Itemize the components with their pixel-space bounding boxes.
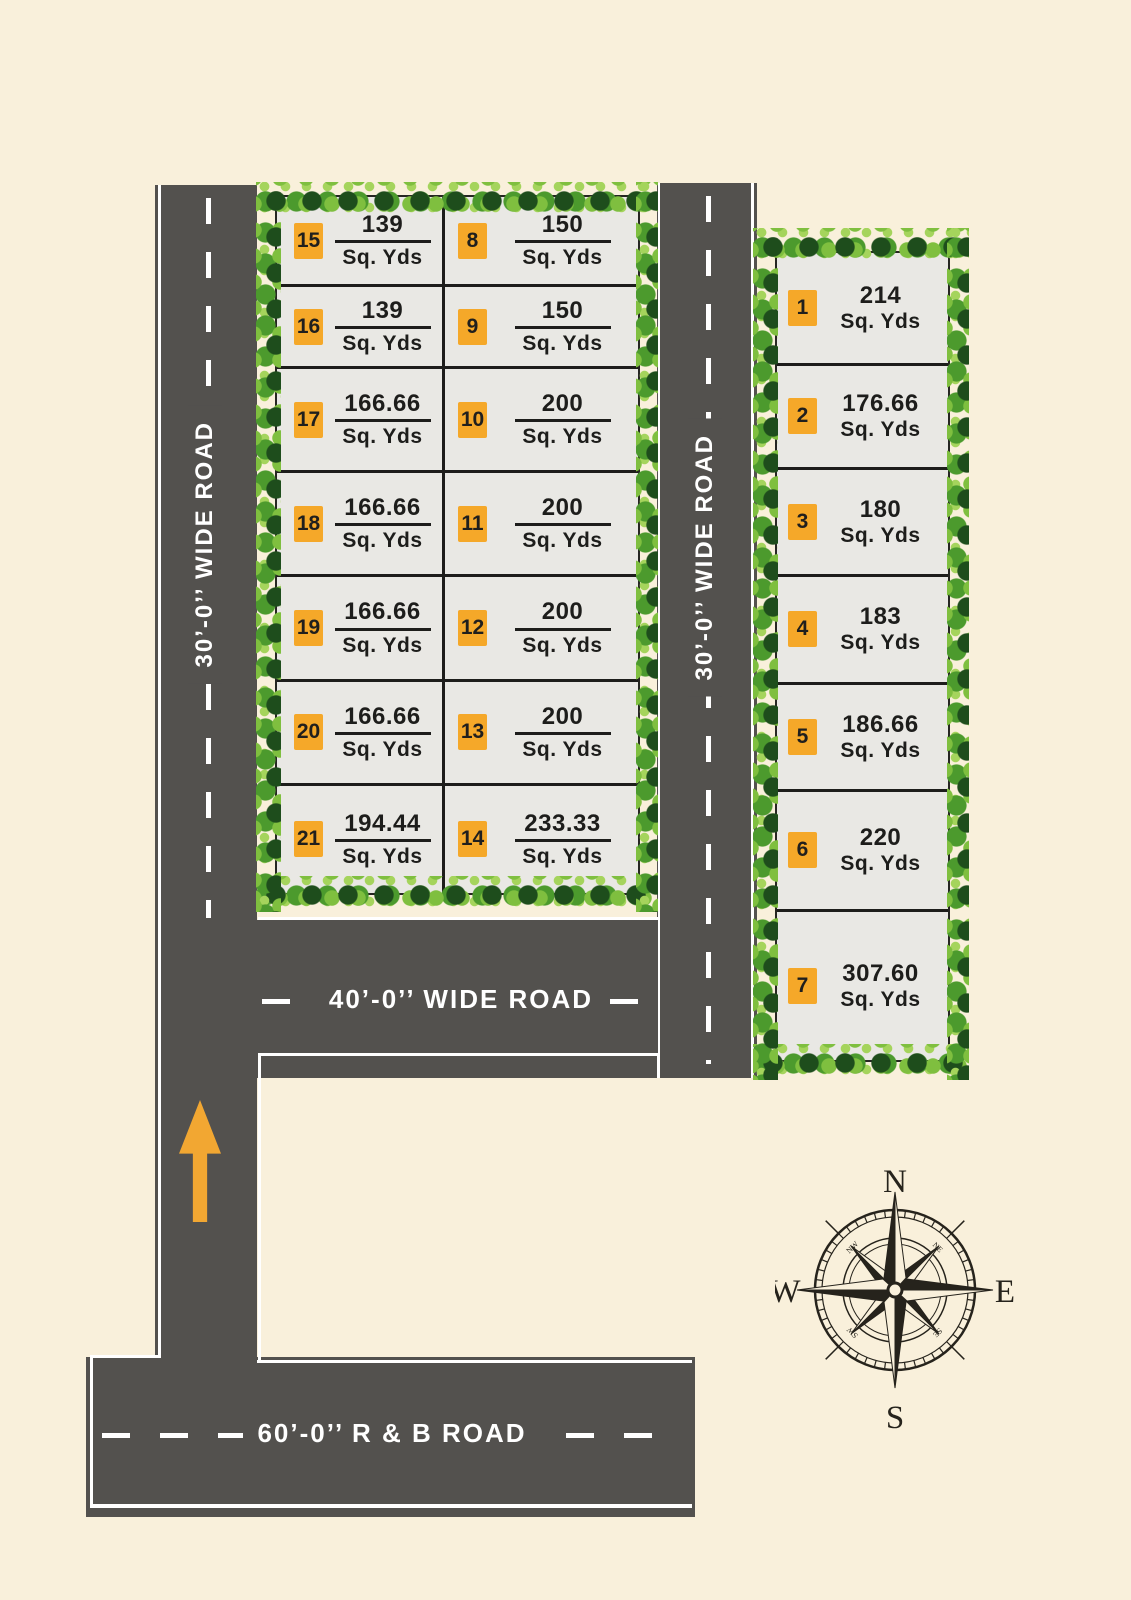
plot-area: 200 Sq. Yds — [487, 599, 638, 656]
plot-area: 200 Sq. Yds — [487, 391, 638, 448]
plot-number-badge: 14 — [458, 821, 487, 857]
middle-road-label: 30’-0’’ WIDE ROAD — [688, 418, 722, 696]
plot-area: 150 Sq. Yds — [487, 212, 638, 269]
plot-cell: 3 180 Sq. Yds — [777, 470, 948, 577]
plot-number-badge: 19 — [294, 610, 323, 646]
plot-area-value: 176.66 — [842, 391, 918, 416]
forty-road-label: 40’-0’’ WIDE ROAD — [315, 982, 607, 1017]
sixty-road-label-wrap: 60’-0’’ R & B ROAD — [102, 1416, 682, 1451]
plot-area-value: 166.66 — [344, 599, 420, 624]
plot-cell: 7 307.60 Sq. Yds — [777, 912, 948, 1060]
plot-number-badge: 8 — [458, 223, 487, 259]
parcel-outline-left — [258, 1053, 261, 1360]
compass-south-label: S — [886, 1400, 904, 1436]
plot-number-badge: 16 — [294, 309, 323, 345]
plot-area-value: 200 — [542, 704, 584, 729]
plot-cell: 4 183 Sq. Yds — [777, 577, 948, 684]
plot-cell: 19 166.66 Sq. Yds — [277, 577, 442, 681]
corner-parcel-line-h — [92, 1355, 161, 1358]
plot-area-value: 166.66 — [344, 391, 420, 416]
sixty-road-left-edge-line — [90, 1355, 93, 1507]
fraction-line — [335, 839, 431, 842]
parcel-outline-top — [258, 1053, 660, 1056]
plot-area-value: 166.66 — [344, 704, 420, 729]
forty-road-label-wrap: 40’-0’’ WIDE ROAD — [262, 982, 660, 1017]
sixty-road-label: 60’-0’’ R & B ROAD — [243, 1416, 540, 1451]
plot-area-unit: Sq. Yds — [342, 635, 422, 657]
plot-area: 176.66 Sq. Yds — [817, 391, 944, 441]
plot-area-unit: Sq. Yds — [342, 739, 422, 761]
plot-number-badge: 5 — [788, 719, 817, 755]
tree-border-icon — [256, 876, 658, 912]
fraction-line — [515, 240, 611, 243]
fraction-line — [515, 628, 611, 631]
left-road-edge-line — [158, 185, 161, 1355]
plot-area-unit: Sq. Yds — [522, 426, 602, 448]
plot-number-badge: 12 — [458, 610, 487, 646]
plot-area-value: 307.60 — [842, 961, 918, 986]
plot-area: 166.66 Sq. Yds — [323, 704, 442, 761]
fraction-line — [335, 732, 431, 735]
plot-area: 186.66 Sq. Yds — [817, 712, 944, 762]
site-plan: 30’-0’’ WIDE ROAD 30’-0’’ WIDE ROAD 40’-… — [0, 0, 1131, 1600]
plot-area: 194.44 Sq. Yds — [323, 811, 442, 868]
plot-area-unit: Sq. Yds — [840, 311, 920, 333]
fraction-line — [515, 732, 611, 735]
plot-cell: 1 214 Sq. Yds — [777, 253, 948, 366]
compass-north-label: N — [883, 1164, 907, 1200]
middle-road-left-edge-line — [658, 183, 660, 1078]
plot-number-badge: 20 — [294, 714, 323, 750]
plot-number-badge: 11 — [458, 506, 487, 542]
plot-area: 200 Sq. Yds — [487, 704, 638, 761]
plot-column-15-21: 15 139 Sq. Yds 16 139 Sq. Yds 17 166.66 … — [277, 197, 442, 893]
plot-number-badge: 15 — [294, 223, 323, 259]
plot-area-unit: Sq. Yds — [840, 853, 920, 875]
fraction-line — [335, 628, 431, 631]
plot-area-value: 166.66 — [344, 495, 420, 520]
plot-area-value: 220 — [860, 825, 902, 850]
plot-cell: 13 200 Sq. Yds — [445, 682, 638, 786]
plot-area-value: 139 — [362, 212, 404, 237]
plot-number-badge: 9 — [458, 309, 487, 345]
plot-number-badge: 2 — [788, 398, 817, 434]
compass-east-label: E — [995, 1274, 1015, 1310]
fraction-line — [515, 419, 611, 422]
plot-area-unit: Sq. Yds — [342, 846, 422, 868]
plot-number-badge: 6 — [788, 832, 817, 868]
tree-border-icon — [256, 182, 658, 215]
fraction-line — [515, 839, 611, 842]
sixty-road-bottom-edge-line — [90, 1504, 692, 1508]
plot-area-unit: Sq. Yds — [840, 419, 920, 441]
compass-rose-icon: N E S W NW NE SE SW — [775, 1130, 1015, 1450]
plot-number-badge: 4 — [788, 611, 817, 647]
fraction-line — [335, 240, 431, 243]
plot-area-unit: Sq. Yds — [522, 635, 602, 657]
plot-area-value: 200 — [542, 599, 584, 624]
plot-cell: 2 176.66 Sq. Yds — [777, 366, 948, 470]
plot-area-unit: Sq. Yds — [342, 530, 422, 552]
plot-area: 166.66 Sq. Yds — [323, 599, 442, 656]
plot-number-badge: 1 — [788, 290, 817, 326]
fraction-line — [335, 523, 431, 526]
plot-area: 183 Sq. Yds — [817, 604, 944, 654]
plot-area-value: 150 — [542, 212, 584, 237]
plot-area-unit: Sq. Yds — [342, 333, 422, 355]
plot-cell: 12 200 Sq. Yds — [445, 577, 638, 681]
fraction-line — [515, 523, 611, 526]
tree-border-icon — [256, 182, 281, 912]
right-plot-block: 1 214 Sq. Yds 2 176.66 Sq. Yds 3 180 Sq.… — [753, 228, 969, 1080]
plot-area: 139 Sq. Yds — [323, 212, 442, 269]
plot-cell: 20 166.66 Sq. Yds — [277, 682, 442, 786]
plot-area-unit: Sq. Yds — [840, 525, 920, 547]
plot-number-badge: 17 — [294, 402, 323, 438]
plot-area-unit: Sq. Yds — [522, 530, 602, 552]
tree-border-icon — [753, 228, 778, 1080]
plot-area-value: 214 — [860, 283, 902, 308]
plot-area-value: 200 — [542, 391, 584, 416]
plot-cell: 11 200 Sq. Yds — [445, 473, 638, 577]
plot-cell: 17 166.66 Sq. Yds — [277, 369, 442, 473]
compass-west-label: W — [775, 1274, 801, 1310]
left-plot-block: 15 139 Sq. Yds 16 139 Sq. Yds 17 166.66 … — [256, 182, 658, 912]
plot-number-badge: 18 — [294, 506, 323, 542]
tree-border-icon — [753, 1044, 969, 1080]
plot-area-unit: Sq. Yds — [522, 739, 602, 761]
plot-cell: 5 186.66 Sq. Yds — [777, 685, 948, 792]
plot-block-bottom-line — [258, 917, 658, 920]
plot-area: 233.33 Sq. Yds — [487, 811, 638, 868]
plot-area: 139 Sq. Yds — [323, 298, 442, 355]
left-plot-grid: 15 139 Sq. Yds 16 139 Sq. Yds 17 166.66 … — [275, 195, 640, 895]
plot-area: 150 Sq. Yds — [487, 298, 638, 355]
left-road-label: 30’-0’’ WIDE ROAD — [188, 405, 222, 683]
plot-column-1-7: 1 214 Sq. Yds 2 176.66 Sq. Yds 3 180 Sq.… — [775, 251, 950, 1062]
sixty-road-top-edge-line — [257, 1360, 692, 1363]
plot-number-badge: 3 — [788, 504, 817, 540]
plot-area: 200 Sq. Yds — [487, 495, 638, 552]
plot-cell: 18 166.66 Sq. Yds — [277, 473, 442, 577]
plot-area-value: 150 — [542, 298, 584, 323]
plot-area: 166.66 Sq. Yds — [323, 391, 442, 448]
plot-area-unit: Sq. Yds — [840, 989, 920, 1011]
tree-border-icon — [753, 228, 969, 261]
plot-cell: 9 150 Sq. Yds — [445, 287, 638, 369]
plot-area-unit: Sq. Yds — [522, 333, 602, 355]
plot-column-8-14: 8 150 Sq. Yds 9 150 Sq. Yds 10 200 Sq. Y… — [442, 197, 638, 893]
plot-cell: 16 139 Sq. Yds — [277, 287, 442, 369]
plot-area-value: 183 — [860, 604, 902, 629]
tree-border-icon — [636, 182, 658, 912]
plot-area-value: 180 — [860, 497, 902, 522]
fraction-line — [515, 326, 611, 329]
plot-area-unit: Sq. Yds — [342, 426, 422, 448]
plot-area-unit: Sq. Yds — [522, 846, 602, 868]
plot-number-badge: 21 — [294, 821, 323, 857]
plot-area-unit: Sq. Yds — [840, 632, 920, 654]
plot-area-unit: Sq. Yds — [840, 740, 920, 762]
plot-area: 220 Sq. Yds — [817, 825, 944, 875]
plot-area: 166.66 Sq. Yds — [323, 495, 442, 552]
plot-area-value: 233.33 — [524, 811, 600, 836]
plot-area-value: 139 — [362, 298, 404, 323]
plot-area: 307.60 Sq. Yds — [817, 961, 944, 1011]
tree-border-icon — [947, 228, 969, 1080]
plot-area-unit: Sq. Yds — [522, 247, 602, 269]
fraction-line — [335, 419, 431, 422]
plot-area-value: 186.66 — [842, 712, 918, 737]
plot-area: 180 Sq. Yds — [817, 497, 944, 547]
plot-area-value: 194.44 — [344, 811, 420, 836]
fraction-line — [335, 326, 431, 329]
plot-cell: 10 200 Sq. Yds — [445, 369, 638, 473]
parcel-outline-right — [657, 1053, 660, 1078]
plot-number-badge: 7 — [788, 968, 817, 1004]
plot-number-badge: 13 — [458, 714, 487, 750]
plot-cell: 6 220 Sq. Yds — [777, 792, 948, 912]
plot-area-unit: Sq. Yds — [342, 247, 422, 269]
plot-number-badge: 10 — [458, 402, 487, 438]
plot-area-value: 200 — [542, 495, 584, 520]
plot-area: 214 Sq. Yds — [817, 283, 944, 333]
